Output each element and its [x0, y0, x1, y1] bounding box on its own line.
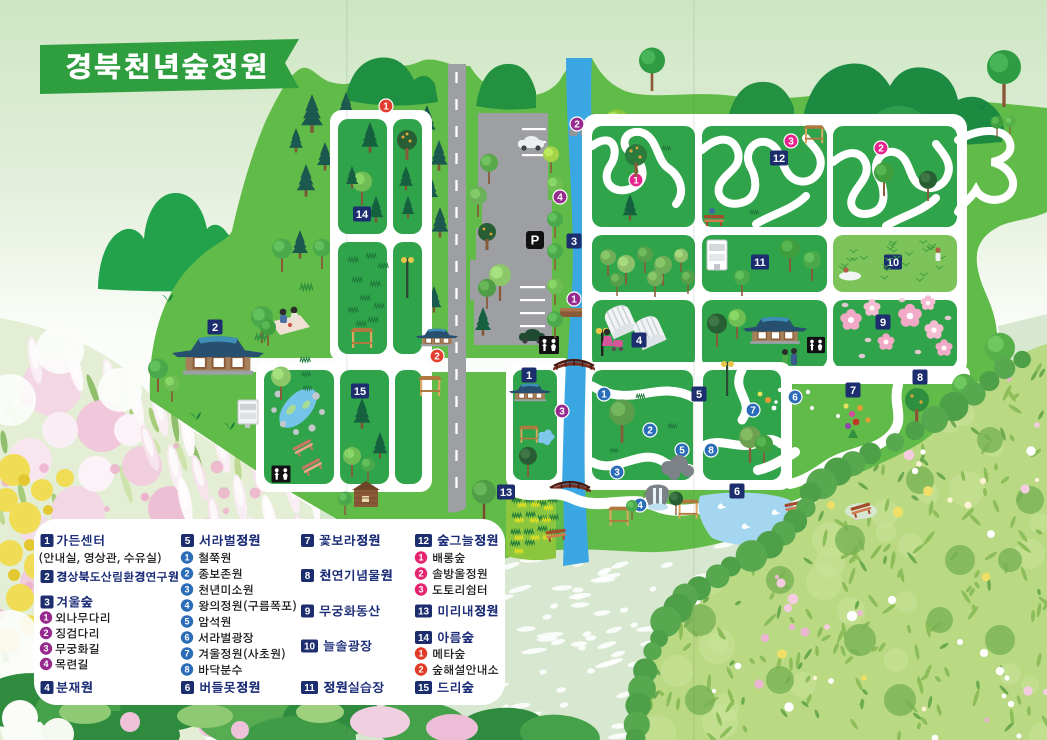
svg-text:5: 5 — [679, 446, 685, 457]
svg-text:13: 13 — [500, 487, 512, 499]
svg-text:14: 14 — [418, 633, 430, 644]
svg-text:6: 6 — [185, 683, 191, 694]
svg-text:1: 1 — [43, 613, 48, 623]
svg-text:15: 15 — [354, 386, 366, 398]
svg-text:3: 3 — [571, 236, 577, 248]
svg-text:2: 2 — [647, 426, 653, 437]
svg-text:14: 14 — [356, 209, 369, 221]
svg-text:3: 3 — [559, 407, 565, 418]
svg-text:13: 13 — [418, 607, 430, 618]
svg-text:3: 3 — [418, 585, 423, 595]
svg-text:3: 3 — [614, 468, 620, 479]
svg-text:3: 3 — [184, 585, 189, 595]
svg-text:5: 5 — [185, 536, 191, 547]
svg-text:10: 10 — [304, 642, 316, 653]
svg-text:2: 2 — [574, 120, 580, 131]
svg-text:3: 3 — [43, 644, 48, 654]
svg-text:12: 12 — [418, 536, 430, 547]
svg-text:1: 1 — [601, 390, 607, 401]
svg-text:1: 1 — [418, 649, 423, 659]
svg-text:7: 7 — [850, 385, 856, 397]
svg-text:2: 2 — [434, 352, 440, 363]
svg-text:2: 2 — [44, 572, 50, 583]
svg-text:9: 9 — [880, 317, 886, 329]
svg-text:1: 1 — [44, 536, 50, 547]
svg-text:1: 1 — [184, 553, 189, 563]
svg-text:2: 2 — [184, 569, 189, 579]
svg-text:1: 1 — [383, 102, 389, 113]
svg-text:2: 2 — [418, 665, 423, 675]
svg-text:1: 1 — [418, 553, 423, 563]
svg-text:8: 8 — [917, 372, 923, 384]
svg-text:3: 3 — [44, 598, 50, 609]
svg-text:4: 4 — [184, 601, 189, 611]
svg-text:11: 11 — [754, 257, 766, 269]
svg-text:4: 4 — [557, 193, 563, 204]
svg-text:P: P — [531, 233, 540, 248]
svg-text:4: 4 — [637, 501, 643, 512]
svg-text:7: 7 — [305, 536, 311, 547]
svg-text:1: 1 — [526, 370, 532, 382]
svg-text:4: 4 — [44, 683, 50, 694]
svg-text:2: 2 — [878, 144, 884, 155]
svg-text:1: 1 — [571, 295, 577, 306]
svg-text:6: 6 — [734, 486, 740, 498]
svg-text:2: 2 — [212, 322, 218, 334]
svg-text:4: 4 — [636, 335, 643, 347]
svg-text:11: 11 — [304, 683, 315, 694]
svg-text:1: 1 — [633, 176, 639, 187]
svg-text:6: 6 — [792, 393, 798, 404]
svg-text:2: 2 — [418, 569, 423, 579]
svg-text:8: 8 — [184, 665, 189, 675]
svg-text:5: 5 — [184, 617, 189, 627]
svg-text:4: 4 — [43, 659, 48, 669]
svg-text:6: 6 — [184, 633, 189, 643]
svg-text:9: 9 — [305, 607, 311, 618]
svg-text:8: 8 — [305, 571, 311, 582]
svg-text:8: 8 — [708, 446, 714, 457]
svg-text:7: 7 — [184, 649, 189, 659]
svg-text:7: 7 — [750, 406, 756, 417]
svg-text:2: 2 — [43, 628, 48, 638]
svg-text:12: 12 — [773, 153, 785, 165]
svg-text:3: 3 — [788, 137, 794, 148]
svg-text:15: 15 — [418, 683, 430, 694]
svg-text:5: 5 — [696, 389, 702, 401]
